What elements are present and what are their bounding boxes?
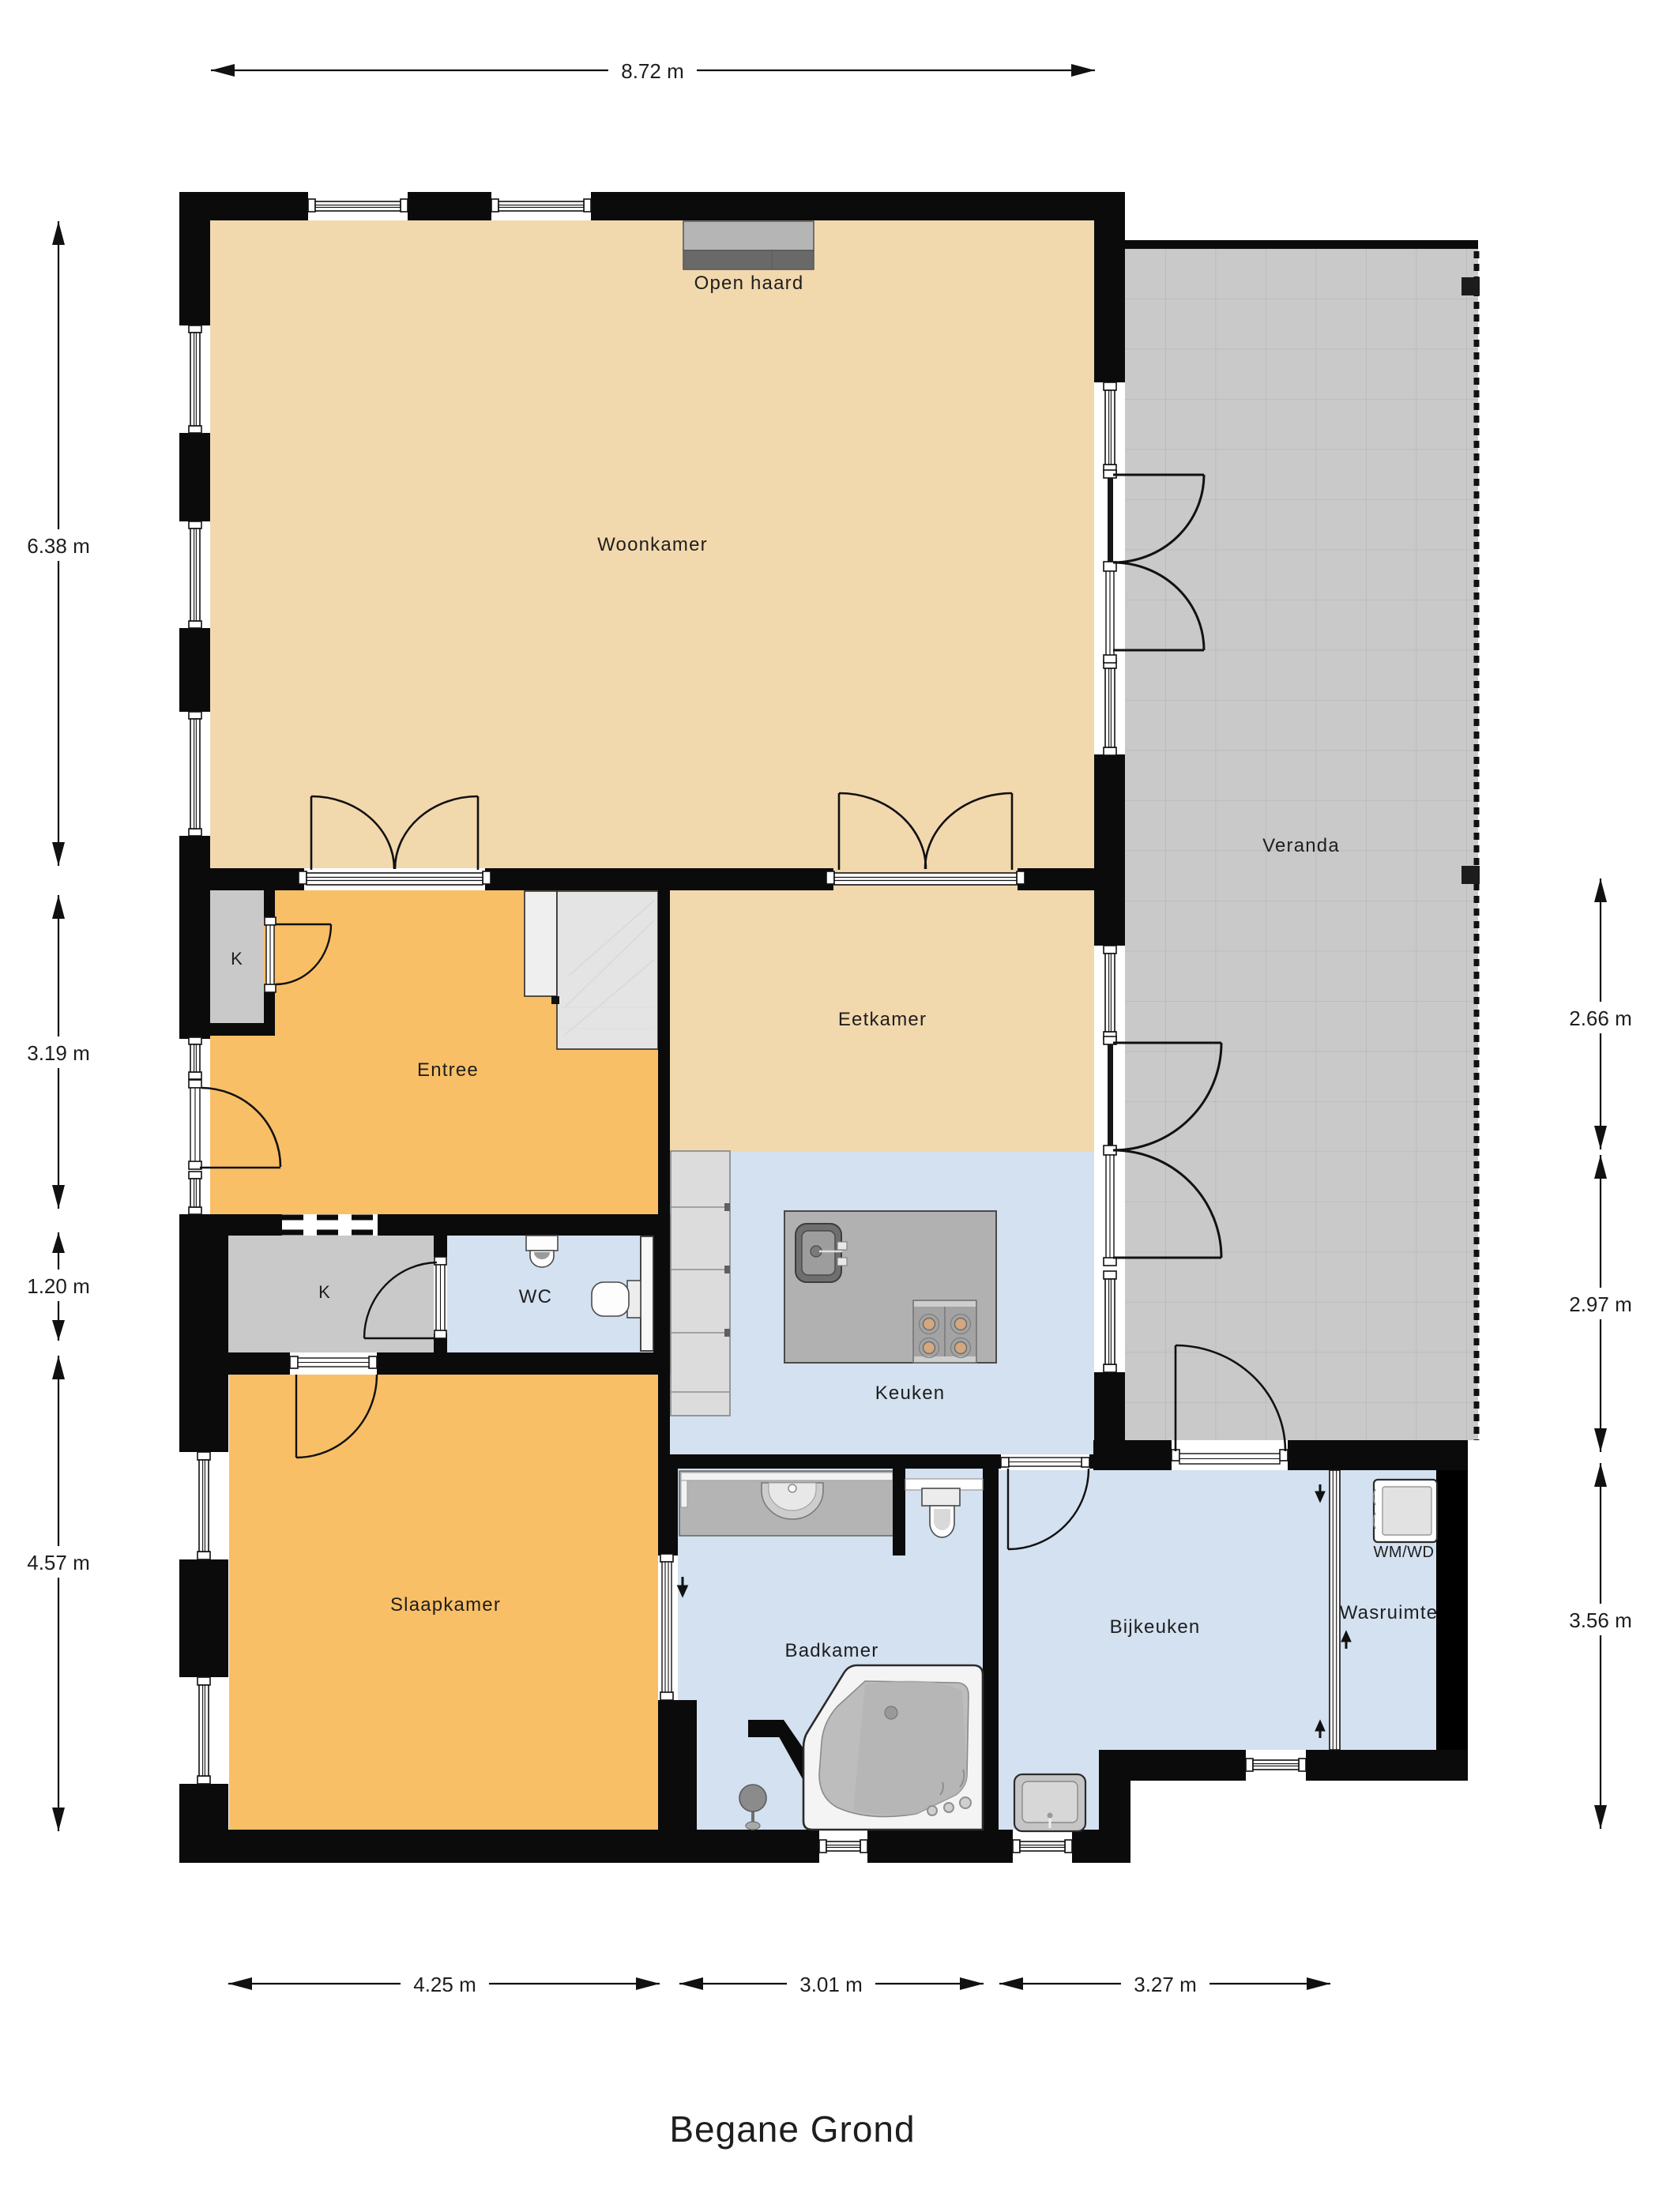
svg-text:Begane Grond: Begane Grond	[669, 2109, 915, 2150]
svg-text:Entree: Entree	[417, 1059, 479, 1081]
svg-text:Keuken: Keuken	[875, 1382, 946, 1404]
svg-text:4.25 m: 4.25 m	[413, 1973, 476, 1996]
svg-text:2.97 m: 2.97 m	[1569, 1292, 1632, 1316]
svg-text:3.19 m: 3.19 m	[27, 1041, 90, 1065]
svg-text:Badkamer: Badkamer	[785, 1640, 879, 1661]
svg-text:8.72 m: 8.72 m	[621, 59, 684, 83]
svg-text:K: K	[318, 1282, 331, 1302]
svg-text:4.57 m: 4.57 m	[27, 1551, 90, 1574]
svg-text:Wasruimte: Wasruimte	[1340, 1602, 1439, 1623]
svg-text:Eetkamer: Eetkamer	[838, 1009, 927, 1030]
svg-text:6.38 m: 6.38 m	[27, 534, 90, 558]
svg-text:Woonkamer: Woonkamer	[597, 534, 708, 555]
svg-text:K: K	[231, 949, 243, 969]
svg-text:Veranda: Veranda	[1262, 835, 1340, 856]
svg-text:3.01 m: 3.01 m	[799, 1973, 863, 1996]
svg-text:Bijkeuken: Bijkeuken	[1110, 1616, 1201, 1638]
svg-text:WM/WD: WM/WD	[1374, 1544, 1435, 1561]
svg-text:WC: WC	[519, 1286, 552, 1307]
svg-text:1.20 m: 1.20 m	[27, 1274, 90, 1298]
svg-text:3.56 m: 3.56 m	[1569, 1608, 1632, 1632]
svg-text:2.66 m: 2.66 m	[1569, 1006, 1632, 1030]
svg-text:3.27 m: 3.27 m	[1134, 1973, 1197, 1996]
svg-text:Slaapkamer: Slaapkamer	[390, 1594, 501, 1616]
svg-text:Open haard: Open haard	[694, 273, 804, 294]
